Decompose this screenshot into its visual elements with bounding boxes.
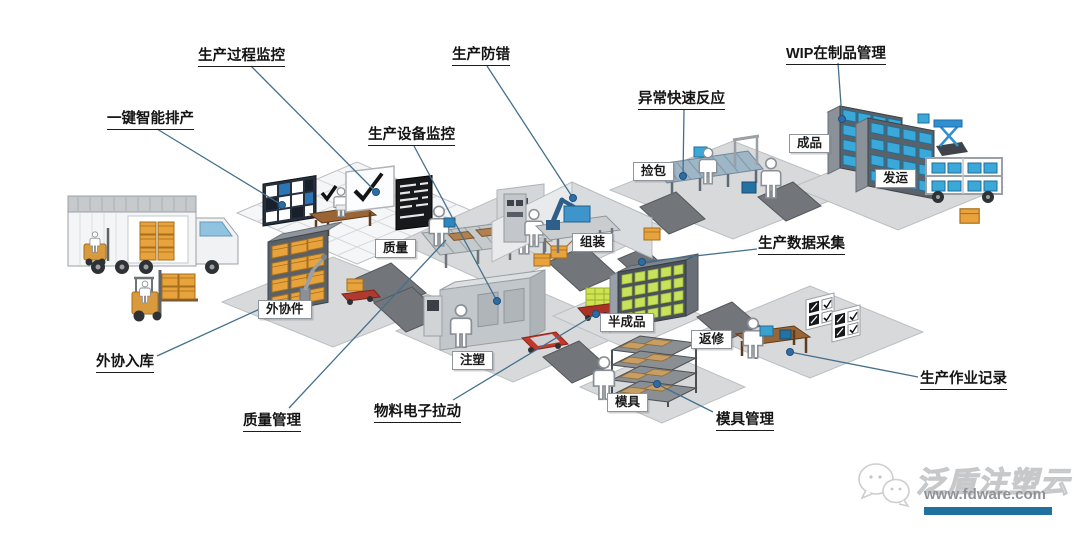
station-finished-goods: 成品 bbox=[789, 134, 830, 153]
brand-url: www.fdware.com bbox=[924, 486, 1046, 503]
callout-wip-management: WIP在制品管理 bbox=[786, 42, 886, 65]
chat-bubbles-icon bbox=[852, 457, 914, 513]
station-mold: 模具 bbox=[607, 393, 648, 412]
diagram-scenery bbox=[0, 0, 1080, 534]
callout-outsourced-inbound: 外协入库 bbox=[96, 350, 154, 373]
brand-watermark: 泛盾注塑云 www.fdware.com bbox=[852, 455, 1067, 525]
callout-equipment-monitoring: 生产设备监控 bbox=[368, 123, 455, 146]
station-shipping: 发运 bbox=[875, 169, 916, 188]
station-rework: 返修 bbox=[691, 330, 732, 349]
callout-exception-response: 异常快速反应 bbox=[638, 87, 725, 110]
station-injection: 注塑 bbox=[452, 351, 493, 370]
station-semi-finished: 半成品 bbox=[600, 313, 654, 332]
station-assembly: 组装 bbox=[572, 233, 613, 252]
callout-material-pull: 物料电子拉动 bbox=[374, 400, 461, 423]
brand-underline-bar bbox=[924, 507, 1052, 515]
callout-error-proofing: 生产防错 bbox=[452, 43, 510, 66]
factory-diagram: 生产过程监控 一键智能排产 生产设备监控 生产防错 异常快速反应 WIP在制品管… bbox=[0, 0, 1080, 534]
callout-data-collection: 生产数据采集 bbox=[758, 232, 845, 255]
callout-quality-management: 质量管理 bbox=[243, 409, 301, 432]
callout-process-monitoring: 生产过程监控 bbox=[198, 44, 285, 67]
truck-illustration bbox=[68, 196, 238, 274]
callout-operation-records: 生产作业记录 bbox=[920, 367, 1007, 390]
callout-smart-scheduling: 一键智能排产 bbox=[107, 107, 194, 130]
forklift-illustration bbox=[132, 270, 198, 322]
callout-mold-management: 模具管理 bbox=[716, 408, 774, 431]
station-quality: 质量 bbox=[375, 239, 416, 258]
station-outsourced-parts: 外协件 bbox=[258, 300, 312, 319]
station-picking: 捡包 bbox=[633, 162, 674, 181]
